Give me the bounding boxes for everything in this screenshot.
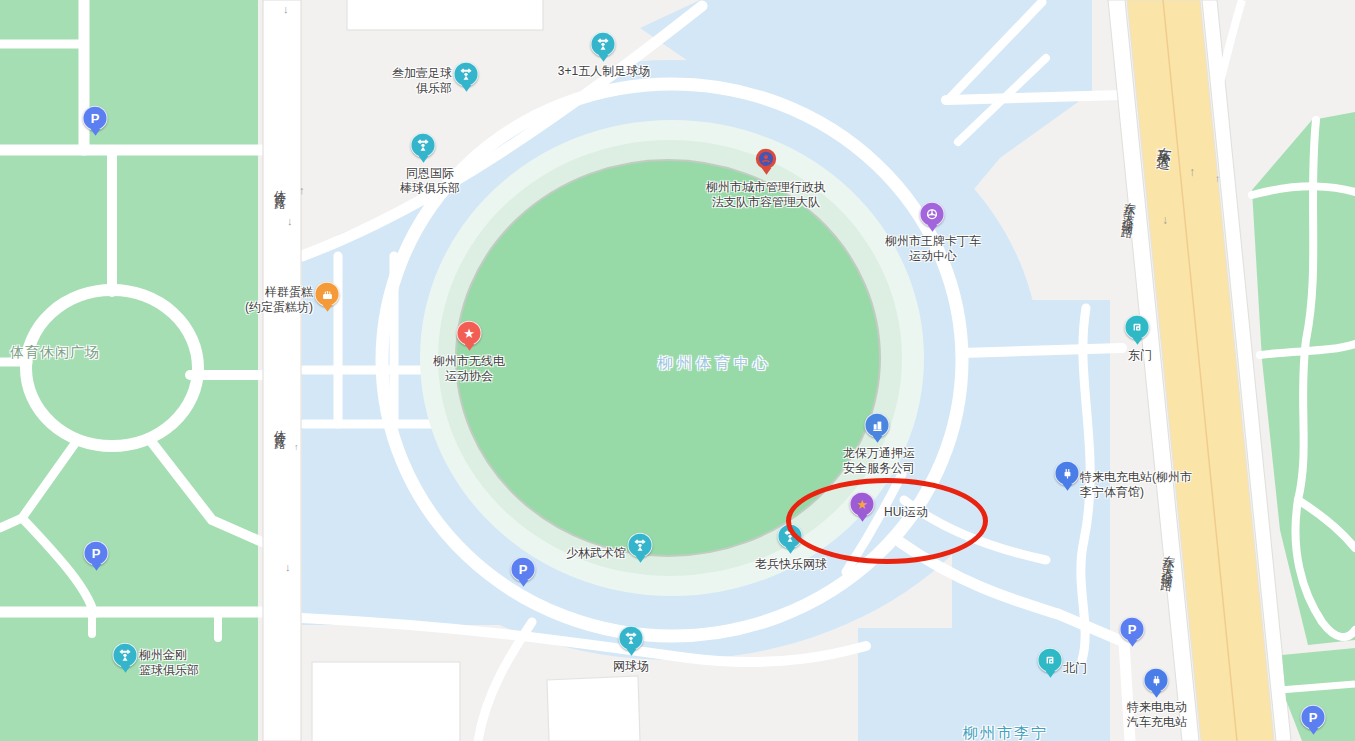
teld-ev-charging-label: 特来电电动 汽车充电站 [1127,700,1187,730]
parking-icon: P [92,547,101,560]
pin-tail [1045,671,1055,683]
city-mgmt-enforcement-brigade-pin[interactable] [755,147,778,180]
hui-sports-pin[interactable]: ★ [850,492,875,527]
parking-icon: P [91,112,100,125]
wangpai-karting-center-pin[interactable] [920,202,945,237]
donghuan-frontage-west-road-label: 东环大道辅路 [1119,191,1140,223]
ev-charger-icon [1060,466,1074,480]
parking-east-pin[interactable]: P [1120,617,1145,652]
radio-sports-association-label: 柳州市无线电 运动协会 [433,354,505,384]
jingang-basketball-club-label: 柳州金刚 篮球俱乐部 [139,648,199,678]
parking-southwest-pin[interactable]: P [84,541,109,576]
map-canvas[interactable]: 叁加壹足球 俱乐部3+1五人制足球场同恩国际 棒球俱乐部柳州市城市管理行政执 法… [0,0,1355,741]
government-emblem-icon [755,146,778,170]
jingang-basketball-club-pin[interactable] [113,643,138,678]
tiyu-road-north-road-label: 体育路 [271,180,288,192]
steering-wheel-icon [925,207,940,222]
pin-tail [518,580,528,592]
building-icon [870,418,884,432]
pin-tail [1308,728,1318,740]
direction-arrow-icon: ↓ [285,562,291,573]
longbao-escort-company-pin[interactable] [865,413,890,448]
sport-icon [624,631,639,646]
parking-icon: P [1309,711,1318,724]
radio-sports-association-pin[interactable]: ★ [457,321,482,356]
teld-charging-lining-gym-label: 特来电充电站(柳州市 李宁体育馆) [1080,470,1192,500]
ev-charger-icon [1149,673,1163,687]
star-icon: ★ [463,327,475,340]
direction-arrow-icon: ↑ [299,185,305,196]
pin-tail [927,225,937,237]
longbao-escort-company-label: 龙保万通押运 安全服务公司 [843,446,915,476]
tennis-court-pin[interactable] [619,626,644,661]
teld-ev-charging-pin[interactable] [1144,668,1169,703]
north-gate-label: 北门 [1063,661,1087,676]
tongen-baseball-club-pin[interactable] [411,133,436,168]
direction-arrow-icon: ↑ [294,443,299,452]
parking-inner-pin[interactable]: P [511,557,536,592]
direction-arrow-icon: ↑ [1215,174,1220,184]
donghuan-avenue-road-label: 东环大道 [1156,135,1175,149]
pin-tail [322,305,332,317]
pin-tail [120,666,130,678]
tennis-court-label: 网球场 [613,659,649,674]
shaolin-martial-arts-hall-label: 少林武术馆 [566,546,626,561]
pin-tail [785,547,795,559]
pin-tail [872,436,882,448]
teld-charging-lining-gym-pin[interactable] [1055,461,1080,496]
pin-tail [857,515,867,527]
poi-overlay: 叁加壹足球 俱乐部3+1五人制足球场同恩国际 棒球俱乐部柳州市城市管理行政执 法… [0,0,1355,741]
hui-sports-label: HUi运动 [884,505,928,520]
parking-icon: P [519,563,528,576]
pin-tail [1062,484,1072,496]
yangqun-cake-shop-pin[interactable] [315,282,340,317]
east-gate-label: 东门 [1128,348,1152,363]
direction-arrow-icon: ↓ [283,4,289,15]
wangpai-karting-center-label: 柳州市王牌卡丁车 运动中心 [885,234,981,264]
sanjiayi-football-club-label: 叁加壹足球 俱乐部 [392,66,452,96]
laobing-happy-tennis-label: 老兵快乐网球 [755,557,827,572]
sport-icon [459,67,474,82]
sport-icon [783,529,798,544]
five-a-side-pitch-pin[interactable] [591,32,616,67]
gate-icon [1044,654,1057,667]
direction-arrow-icon: ↓ [287,216,293,227]
donghuan-frontage-east-road-label: 东环大道辅路 [1158,544,1178,576]
star-icon: ★ [856,498,868,511]
laobing-happy-tennis-pin[interactable] [778,524,803,559]
gate-icon [1131,321,1144,334]
direction-arrow-icon: ↑ [1189,166,1195,178]
pin-tail [626,649,636,661]
parking-southeast-pin[interactable]: P [1301,705,1326,740]
sport-icon [633,538,648,553]
city-mgmt-enforcement-brigade-label: 柳州市城市管理行政执 法支队市容管理大队 [706,180,826,210]
sport-icon [118,648,133,663]
pin-tail [464,344,474,356]
sport-icon [596,37,611,52]
pin-tail [418,156,428,168]
sanjiayi-football-club-pin[interactable] [454,62,479,97]
pin-tail [91,564,101,576]
pin-tail [90,129,100,141]
sports-leisure-plaza-area-label: 体育休闲广场 [10,344,100,362]
parking-northwest-pin[interactable]: P [83,106,108,141]
pin-tail [1127,640,1137,652]
shaolin-martial-arts-hall-pin[interactable] [628,533,653,568]
east-gate-pin[interactable] [1125,315,1150,350]
pin-tail [635,556,645,568]
north-gate-pin[interactable] [1038,648,1063,683]
tongen-baseball-club-label: 同恩国际 棒球俱乐部 [400,166,460,196]
liuzhou-lining-area-label: 柳州市李宁 [963,724,1048,741]
sport-icon [416,138,431,153]
parking-icon: P [1128,623,1137,636]
direction-arrow-icon: ↓ [1162,214,1168,226]
pin-tail [1132,338,1142,350]
pin-tail [1151,691,1161,703]
tiyu-road-south-road-label: 体育路 [271,420,288,432]
yangqun-cake-shop-label: 样群蛋糕 (约定蛋糕坊) [245,285,313,315]
liuzhou-sports-center-area-label: 柳州体育中心 [658,354,772,373]
cake-icon [320,287,334,301]
pin-tail [461,85,471,97]
pin-tail [761,168,771,180]
pin-tail [598,55,608,67]
